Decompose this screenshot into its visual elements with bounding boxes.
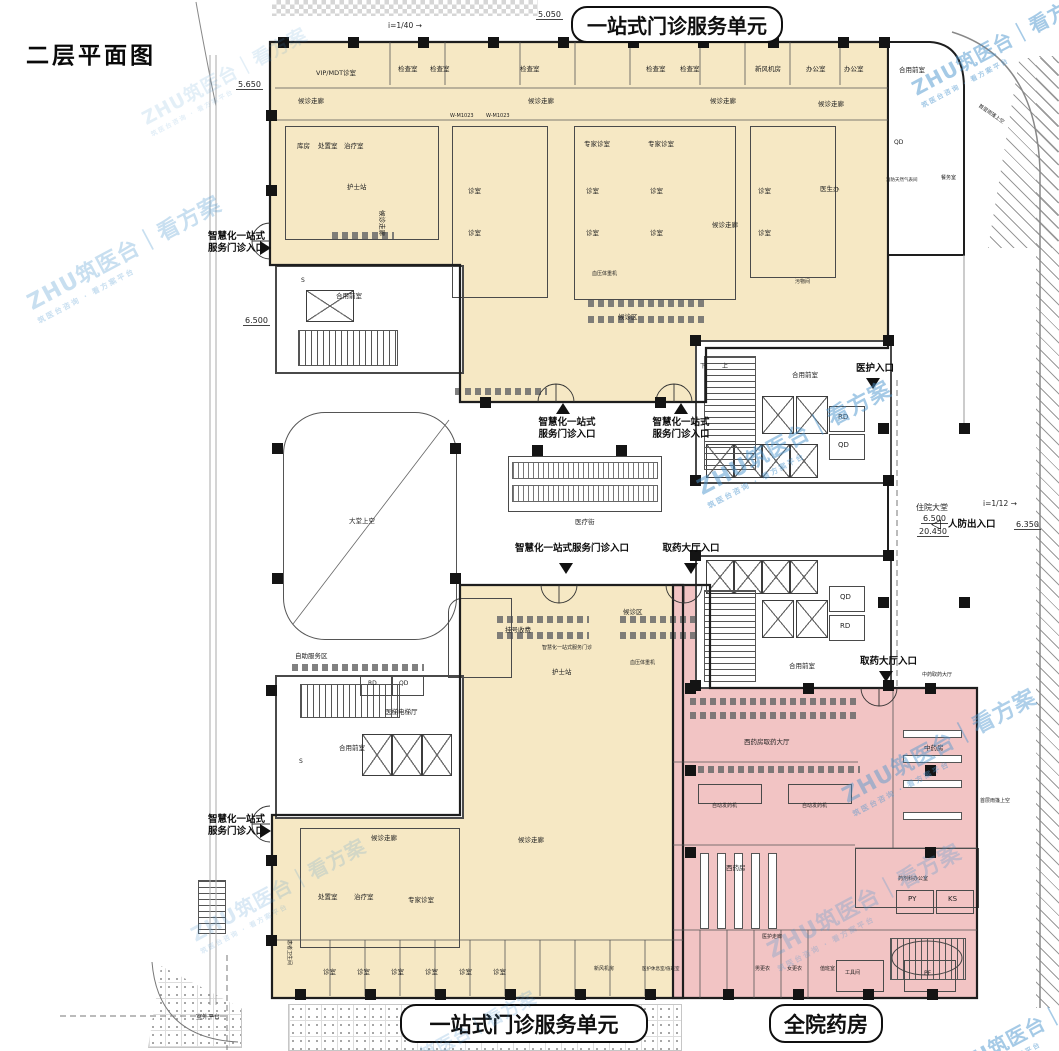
room-label: 合用前室 [339,745,365,752]
room-label: 西药房 [726,865,746,872]
room-label: 诊室 [425,969,438,976]
column-marker [863,989,874,1000]
room-label: 库房 [297,143,310,150]
room-label: 大堂上空 [349,518,375,525]
column-marker [435,989,446,1000]
room-label: PY [908,895,916,903]
column-marker [879,37,890,48]
room-label: 检查室 [680,66,700,73]
column-marker [278,37,289,48]
room-label: PF [924,971,931,978]
column-marker [690,475,701,486]
room-label: RD [368,681,377,688]
column-marker [878,423,889,434]
entrance-arrow-icon [559,563,573,574]
column-marker [365,989,376,1000]
slope-annotation: i=1/12 [983,499,1017,508]
room-label: 合用前室 [792,372,818,379]
room-label: 餐务室 [941,176,956,182]
room-label: 处置室 [318,894,338,901]
room-label: 候诊区 [623,609,643,616]
room-label: 自动发药机 [712,804,737,810]
room-label: 诊室 [468,230,481,237]
column-marker [575,989,586,1000]
entrance-label: 人防出入口 [948,519,1008,531]
floor-plan-canvas: 二层平面图 一站式门诊服务单元 一站式门诊服务单元 全院药房 VIP/MDT诊室… [0,0,1059,1051]
column-marker [616,445,627,456]
column-marker [266,110,277,121]
column-marker [272,573,283,584]
room-label: W-M1023 [450,114,474,120]
column-marker [925,847,936,858]
column-marker [878,597,889,608]
room-label: 候诊走廊 [528,98,554,105]
column-marker [488,37,499,48]
room-label: 合用前室 [789,663,815,670]
entrance-label: 智慧化一站式 服务门诊入口 [193,231,265,255]
column-marker [959,423,970,434]
room-label: 诊室 [758,230,771,237]
room-label: 候诊走廊 [518,837,544,844]
entrance-arrow-icon [556,403,570,414]
room-label: 治疗室 [354,894,374,901]
room-label: 女更衣 [787,967,802,973]
room-label: 新风机房 [755,66,781,73]
column-marker [883,335,894,346]
entrance-label: 医护入口 [856,363,906,375]
room-label: 检查室 [520,66,540,73]
entrance-label: 取药大厅入口 [860,656,932,668]
room-label: 室外平台 [196,1015,220,1022]
column-marker [927,989,938,1000]
entrance-label: 智慧化一站式 服务门诊入口 [193,814,265,838]
column-marker [272,443,283,454]
entrance-arrow-icon [260,241,271,255]
entrance-arrow-icon [260,824,271,838]
column-marker [450,573,461,584]
entrance-label: 取药大厅入口 [655,543,727,555]
column-marker [838,37,849,48]
room-label: 医梯电梯厅 [385,709,418,716]
room-label: 医疗街 [575,519,595,526]
room-label: 诊室 [586,230,599,237]
room-label: 医护休息室/值班室 [642,967,680,972]
room-label: 诊室 [391,969,404,976]
room-label: 值班室 [820,967,835,973]
room-label: 血压体重机 [592,272,617,278]
entrance-label: 智慧化一站式 服务门诊入口 [527,417,607,441]
room-label: RD [838,413,848,421]
room-label: 候诊走廊 [298,98,324,105]
column-marker [655,397,666,408]
slope-annotation: i=1/40 [388,21,422,30]
plan-linework [0,0,1059,1051]
room-label: 诊室 [493,969,506,976]
column-marker [450,443,461,454]
column-marker [266,935,277,946]
room-label: 中药取药大厅 [922,673,952,679]
room-label: 上 [722,364,728,371]
room-label: QD [894,140,903,147]
elevation-marker: 5.650 [236,80,263,90]
room-label: QD [399,681,408,688]
room-label: S [301,278,305,285]
room-label: 候诊走廊 [712,222,738,229]
room-label: 污物间 [795,280,810,286]
room-label: 专家诊室 [584,141,610,148]
column-marker [645,989,656,1000]
column-marker [685,683,696,694]
column-marker [558,37,569,48]
room-label: 下 [700,364,706,371]
room-label: 自动发药机 [802,804,827,810]
room-label: 检查室 [646,66,666,73]
entrance-arrow-icon [866,378,880,389]
room-label: 诊室 [468,188,481,195]
column-marker [266,185,277,196]
room-label: VIP/MDT诊室 [316,70,356,77]
elevation-marker: 6.350 [1014,520,1041,530]
room-label: 合用前室 [899,67,925,74]
room-label: 候诊走廊 [710,98,736,105]
room-label: 诊室 [650,188,663,195]
room-label: 诊室 [357,969,370,976]
room-label: QD [838,441,849,449]
banner-bottom: 一站式门诊服务单元 [400,1004,648,1043]
room-label: S [299,759,303,766]
room-label: QD [840,593,851,601]
column-marker [883,475,894,486]
room-label: 医生办 [820,186,840,193]
room-label: 工具间 [845,971,860,977]
room-label: 候诊区 [618,314,638,321]
room-label: 专家诊室 [408,897,434,904]
room-label: 自助服务区 [295,653,328,660]
column-marker [685,765,696,776]
room-label: 专家诊室 [648,141,674,148]
room-label: 诊室 [586,188,599,195]
room-label: 办公室 [806,66,826,73]
column-marker [925,765,936,776]
room-label: 诊室 [758,188,771,195]
room-label: 候诊走廊 [371,835,397,842]
room-label: KS [948,895,957,903]
entrance-label: 智慧化一站式 服务门诊入口 [641,417,721,441]
column-marker [959,597,970,608]
column-marker [295,989,306,1000]
entrance-arrow-icon [684,563,698,574]
room-label: 合用前室 [336,293,362,300]
column-marker [348,37,359,48]
elevation-marker: 5.050 [536,10,563,20]
entrance-arrow-icon [879,671,893,682]
elevation-marker: 住院大堂 [914,502,950,513]
elevation-marker: 6.500 [243,316,270,326]
room-label: 消防天然气表间 [886,178,918,183]
entrance-arrow-icon: ◁ [931,518,941,531]
room-label: 护士站 [552,669,572,676]
room-label: 治疗室 [344,143,364,150]
room-label: 诊室 [323,969,336,976]
room-label: 男更衣 [755,967,770,973]
room-label: 诊室 [650,230,663,237]
room-label: 血压体重机 [630,661,655,667]
column-marker [505,989,516,1000]
column-marker [266,855,277,866]
room-label: 检查室 [430,66,450,73]
column-marker [803,683,814,694]
room-label: 诊室 [459,969,472,976]
room-label: 挂号收费 [505,627,531,634]
entrance-label: 智慧化一站式服务门诊入口 [506,543,638,555]
column-marker [418,37,429,48]
column-marker [480,397,491,408]
room-label: 医护走廊 [762,935,782,941]
room-label: 检查室 [398,66,418,73]
column-marker [266,685,277,696]
column-marker [883,550,894,561]
room-label: 中药房 [924,745,944,752]
column-marker [793,989,804,1000]
room-label: 智慧化一站式服务门诊 [542,646,592,652]
column-marker [690,335,701,346]
room-label: 候诊走廊 [818,101,844,108]
room-label: 西药房取药大厅 [744,739,790,746]
banner-top: 一站式门诊服务单元 [571,6,783,43]
room-label: 药剂科办公室 [898,877,928,883]
room-label: 首层雨篷上空 [980,799,1010,805]
entrance-arrow-icon [674,403,688,414]
room-label: 患者卫生间 [285,940,291,965]
column-marker [723,989,734,1000]
room-label: 处置室 [318,143,338,150]
room-label: 候诊走廊 [378,210,385,236]
room-label: 护士站 [347,184,367,191]
room-label: 办公室 [844,66,864,73]
column-marker [925,683,936,694]
column-marker [685,847,696,858]
room-label: RD [840,622,850,630]
banner-pharmacy: 全院药房 [769,1004,883,1043]
room-label: 新风机房 [594,967,614,973]
column-marker [532,445,543,456]
room-label: W-M1023 [486,114,510,120]
